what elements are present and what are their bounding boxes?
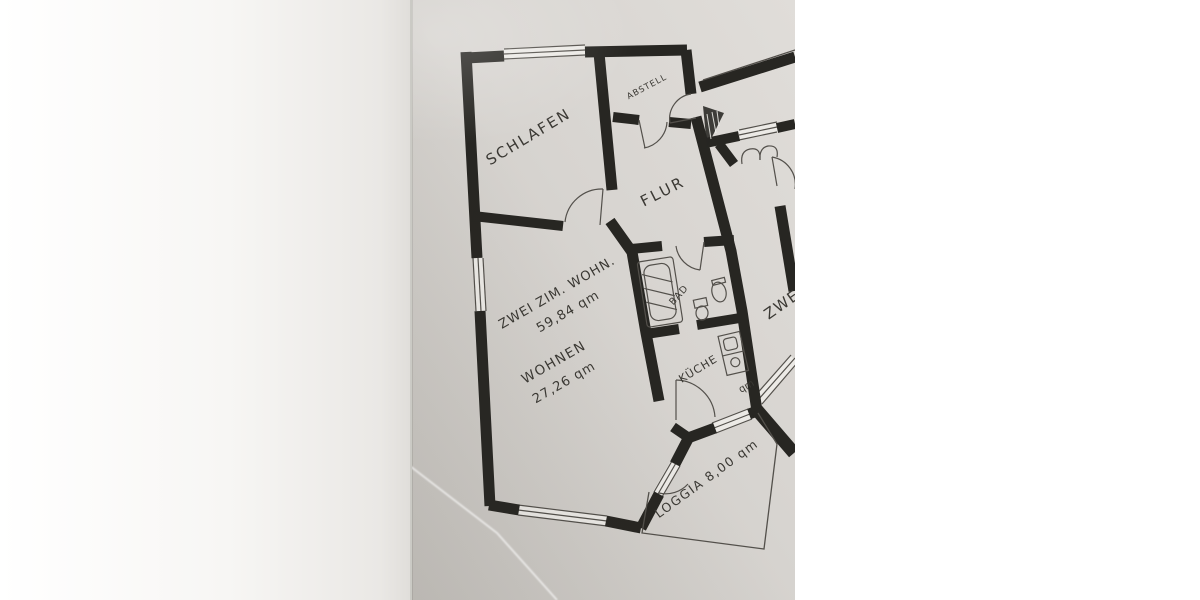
floorplan-photo: SCHLAFEN ABSTELL FLUR ZWEI ZIM. WOHN. 59… — [0, 0, 1200, 600]
left-light-strip — [0, 0, 413, 600]
floorplan-drawing: SCHLAFEN ABSTELL FLUR ZWEI ZIM. WOHN. 59… — [0, 0, 1200, 600]
